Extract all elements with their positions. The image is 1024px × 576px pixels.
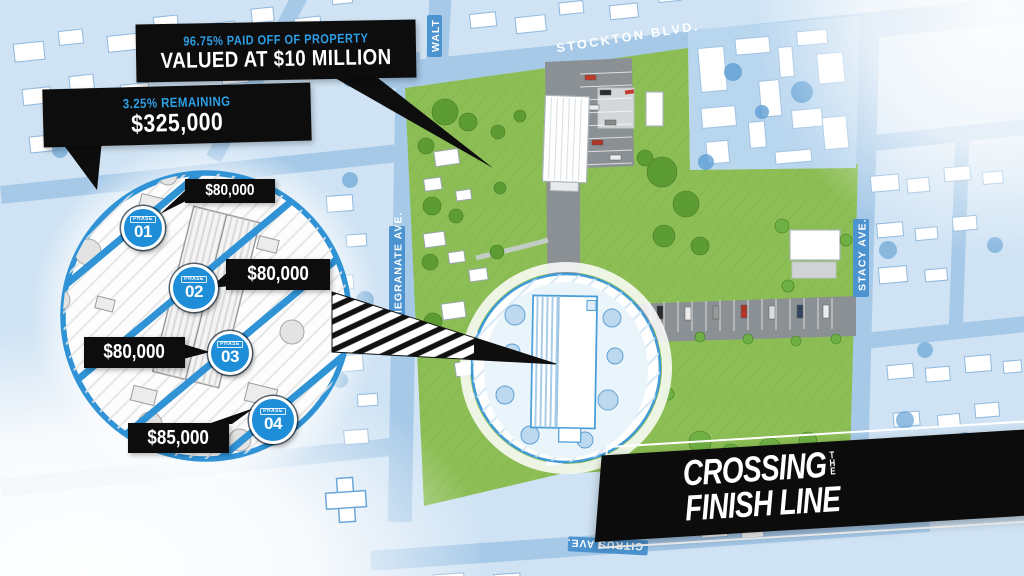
remaining-line2: $325,000 <box>63 108 291 139</box>
remaining-callout: 3.25% REMAINING $325,000 <box>42 83 311 148</box>
phase-04-badge-number: 04 <box>264 416 282 432</box>
paid-off-callout: 96.75% PAID OFF OF PROPERTY VALUED AT $1… <box>136 20 417 83</box>
phase-01-badge-number: 01 <box>134 224 152 240</box>
street-label-walt: WALT <box>430 19 442 52</box>
phase-03-badge: PHASE 03 <box>208 331 252 375</box>
highlighted-building <box>531 295 598 442</box>
phase-01-amount-tag: $80,000 <box>185 179 275 203</box>
phase-01-amount: $80,000 <box>205 182 254 200</box>
banner-title: CROSSING THE FINISH LINE <box>682 447 841 525</box>
phase-03-badge-number: 03 <box>221 349 239 365</box>
phase-04-amount-tag: $85,000 <box>128 423 229 453</box>
phase-03-amount-tag: $80,000 <box>84 337 185 368</box>
paid-off-line2: VALUED AT $10 MILLION <box>157 46 395 72</box>
phase-02-amount: $80,000 <box>247 263 308 286</box>
banner-title-line2: FINISH LINE <box>684 482 841 526</box>
phase-03-amount: $80,000 <box>104 341 165 364</box>
highlight-circle <box>465 267 667 469</box>
infographic-map: STOCKTON BLVD. WALT STACY AVE. POMEGRANA… <box>0 0 1024 576</box>
phase-02-badge: PHASE 02 <box>170 264 218 312</box>
phase-04-badge: PHASE 04 <box>249 396 297 444</box>
phase-01-badge: PHASE 01 <box>121 206 165 250</box>
phase-04-amount: $85,000 <box>148 427 209 450</box>
banner-title-the: THE <box>828 450 837 474</box>
phase-02-badge-number: 02 <box>185 284 203 300</box>
phase-02-amount-tag: $80,000 <box>226 259 330 290</box>
fade-top-right <box>760 0 1024 260</box>
